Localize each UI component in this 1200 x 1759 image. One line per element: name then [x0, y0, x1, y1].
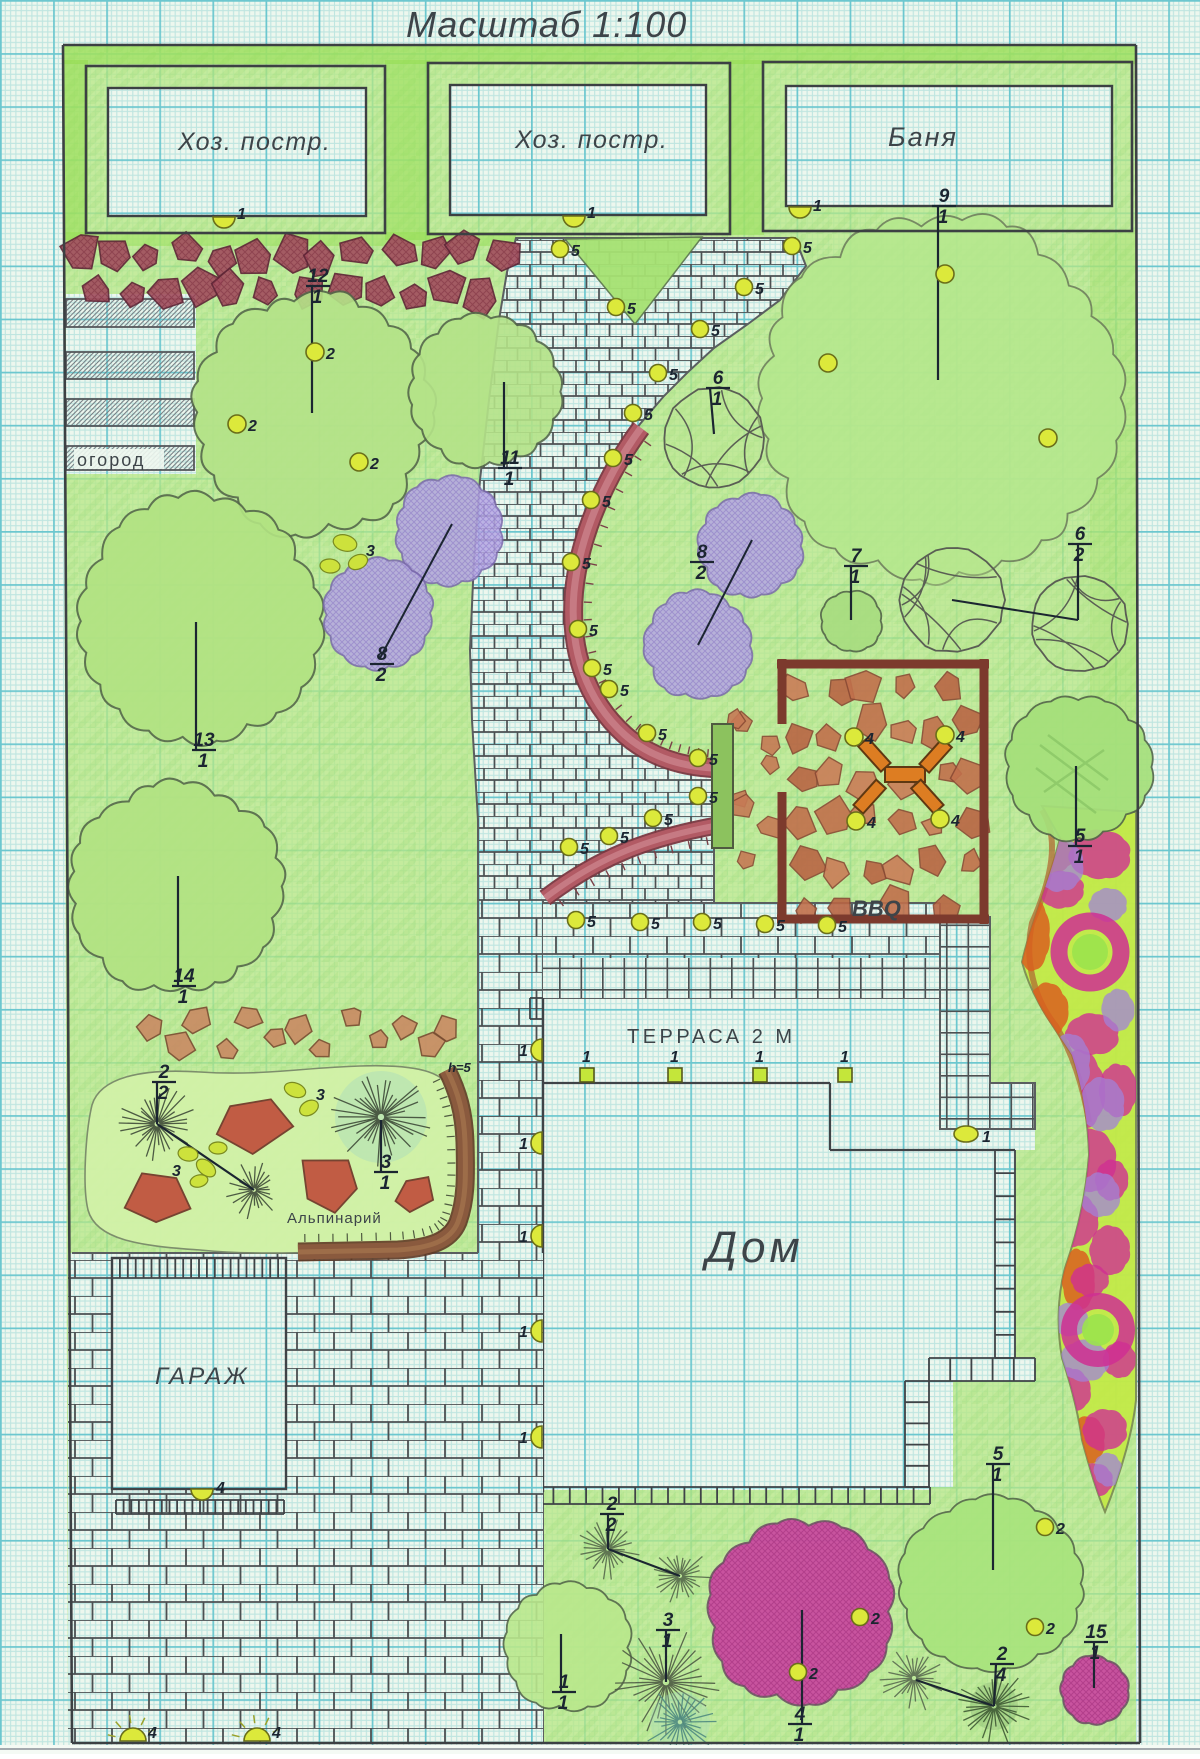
svg-text:5: 5	[755, 281, 765, 298]
svg-text:2: 2	[1055, 1521, 1065, 1538]
svg-text:BBQ: BBQ	[852, 896, 901, 921]
svg-text:14: 14	[173, 966, 195, 987]
svg-text:2: 2	[996, 1644, 1008, 1665]
svg-text:5: 5	[620, 830, 630, 847]
svg-text:1: 1	[670, 1049, 679, 1066]
svg-text:1: 1	[1074, 847, 1085, 868]
svg-text:1: 1	[519, 1043, 528, 1060]
svg-text:5: 5	[803, 240, 813, 257]
svg-text:5: 5	[669, 367, 679, 384]
svg-text:Хоз. постр.: Хоз. постр.	[514, 126, 668, 154]
svg-text:5: 5	[620, 683, 630, 700]
svg-text:1: 1	[662, 1631, 673, 1652]
svg-text:5: 5	[603, 662, 613, 679]
svg-text:1: 1	[982, 1129, 991, 1146]
svg-text:15: 15	[1085, 1622, 1107, 1643]
svg-text:2: 2	[158, 1062, 170, 1083]
svg-text:6: 6	[1075, 524, 1086, 545]
svg-text:2: 2	[808, 1666, 818, 1683]
svg-text:1: 1	[850, 567, 861, 588]
svg-text:1: 1	[813, 198, 822, 215]
svg-text:4: 4	[215, 1480, 225, 1497]
svg-text:1: 1	[587, 205, 596, 222]
svg-text:7: 7	[851, 546, 863, 567]
svg-text:ГАРАЖ: ГАРАЖ	[155, 1363, 249, 1390]
svg-text:Баня: Баня	[888, 122, 958, 152]
svg-text:1: 1	[519, 1430, 528, 1447]
svg-text:1: 1	[380, 1173, 391, 1194]
svg-text:5: 5	[589, 623, 599, 640]
svg-text:Хоз. постр.: Хоз. постр.	[177, 128, 331, 156]
svg-text:4: 4	[995, 1665, 1007, 1686]
svg-text:2: 2	[157, 1083, 169, 1104]
svg-text:2: 2	[870, 1611, 880, 1628]
svg-text:2: 2	[325, 346, 335, 363]
svg-text:Масштаб 1:100: Масштаб 1:100	[406, 4, 687, 45]
svg-text:1: 1	[712, 389, 723, 410]
svg-text:Альпинарий: Альпинарий	[287, 1210, 382, 1227]
svg-text:6: 6	[713, 368, 724, 389]
svg-text:1: 1	[582, 1049, 591, 1066]
svg-text:5: 5	[776, 918, 786, 935]
svg-text:1: 1	[504, 469, 515, 490]
svg-text:5: 5	[651, 916, 661, 933]
svg-text:2: 2	[1045, 1621, 1055, 1638]
svg-text:5: 5	[644, 407, 654, 424]
svg-text:h=5: h=5	[448, 1060, 472, 1075]
svg-text:1: 1	[312, 287, 323, 308]
svg-text:4: 4	[794, 1704, 806, 1725]
svg-text:4: 4	[955, 729, 965, 746]
svg-text:5: 5	[1075, 826, 1086, 847]
svg-text:1: 1	[198, 751, 209, 772]
svg-text:2: 2	[606, 1494, 618, 1515]
svg-text:5: 5	[580, 841, 590, 858]
svg-text:2: 2	[695, 563, 707, 584]
svg-text:1: 1	[519, 1136, 528, 1153]
svg-text:5: 5	[624, 452, 634, 469]
svg-text:3: 3	[316, 1087, 325, 1104]
svg-text:3: 3	[663, 1610, 674, 1631]
svg-text:3: 3	[381, 1152, 392, 1173]
svg-text:3: 3	[172, 1163, 181, 1180]
svg-text:9: 9	[939, 186, 950, 207]
svg-text:11: 11	[500, 448, 520, 469]
svg-text:2: 2	[247, 418, 257, 435]
svg-text:1: 1	[840, 1049, 849, 1066]
svg-text:4: 4	[950, 813, 960, 830]
svg-text:огород: огород	[77, 450, 145, 470]
svg-text:5: 5	[664, 812, 674, 829]
svg-text:4: 4	[147, 1725, 157, 1742]
svg-text:5: 5	[571, 243, 581, 260]
svg-text:ТЕРРАСА 2 М: ТЕРРАСА 2 М	[627, 1026, 796, 1048]
svg-text:2: 2	[375, 665, 387, 686]
svg-text:5: 5	[658, 727, 668, 744]
svg-text:12: 12	[307, 266, 329, 287]
svg-text:5: 5	[838, 919, 848, 936]
svg-text:5: 5	[587, 914, 597, 931]
svg-text:5: 5	[627, 301, 637, 318]
svg-text:2: 2	[1073, 545, 1085, 566]
svg-text:Дом: Дом	[701, 1223, 804, 1272]
svg-text:1: 1	[1090, 1643, 1101, 1664]
svg-text:5: 5	[713, 916, 723, 933]
svg-text:1: 1	[938, 207, 949, 228]
svg-text:2: 2	[605, 1515, 617, 1536]
svg-text:1: 1	[178, 987, 189, 1008]
svg-text:5: 5	[993, 1444, 1004, 1465]
svg-text:1: 1	[519, 1324, 528, 1341]
svg-text:1: 1	[519, 1229, 528, 1246]
svg-text:1: 1	[559, 1672, 570, 1693]
svg-text:4: 4	[866, 815, 876, 832]
svg-text:8: 8	[697, 542, 708, 563]
svg-text:5: 5	[711, 323, 721, 340]
svg-text:3: 3	[366, 543, 375, 560]
svg-text:5: 5	[709, 752, 719, 769]
svg-text:4: 4	[864, 731, 874, 748]
svg-text:8: 8	[377, 644, 388, 665]
svg-text:13: 13	[193, 730, 215, 751]
svg-text:5: 5	[709, 790, 719, 807]
svg-text:5: 5	[602, 494, 612, 511]
svg-text:1: 1	[992, 1465, 1003, 1486]
svg-text:2: 2	[369, 456, 379, 473]
svg-text:5: 5	[582, 556, 592, 573]
svg-text:1: 1	[237, 206, 246, 223]
svg-text:1: 1	[755, 1049, 764, 1066]
svg-text:4: 4	[271, 1725, 281, 1742]
svg-text:1: 1	[558, 1693, 569, 1714]
